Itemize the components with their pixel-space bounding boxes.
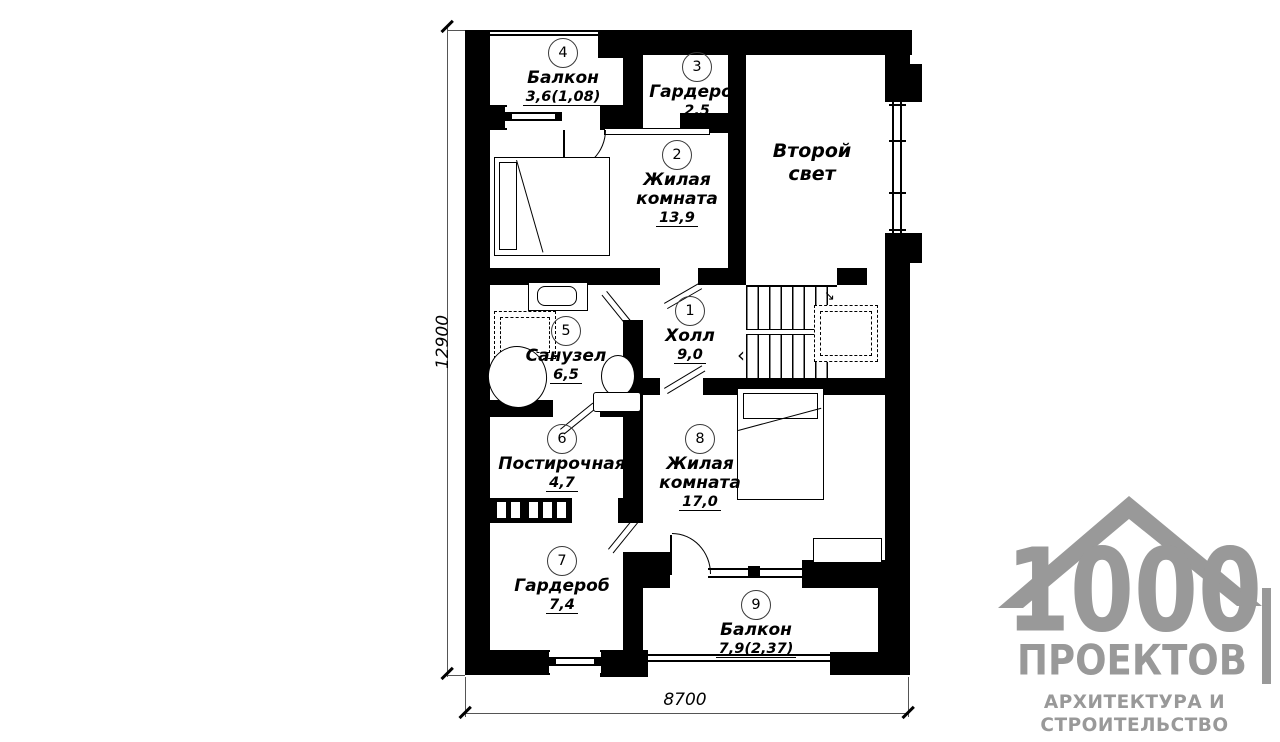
wall-pilaster: [910, 233, 922, 263]
window-secondlight: [887, 102, 908, 233]
room-number-badge: 7: [547, 546, 577, 576]
logo-number: 1000: [1006, 534, 1258, 649]
window-mullion: [889, 140, 906, 142]
window-mullion: [748, 566, 760, 578]
room-area: 17,0: [679, 494, 721, 511]
room-name: Гардероб: [649, 83, 744, 102]
stairs-landing-divider: [746, 329, 820, 335]
logo-wall-bar: [1262, 588, 1271, 684]
room-label-6-laundry: 6 Постирочная 4,7: [505, 424, 619, 492]
room-number-badge: 2: [662, 140, 692, 170]
dimension-extension: [447, 30, 465, 31]
room-area: 3,6(1,08): [523, 89, 604, 106]
wall-under-balcony4: [465, 105, 507, 130]
wall-right-mid: [885, 233, 910, 575]
window-glazing: [505, 119, 562, 121]
balcony4-railing: [467, 34, 623, 36]
room-number: 1: [685, 303, 694, 319]
vent-slot: [557, 502, 566, 518]
room-name: Постирочная: [498, 455, 625, 474]
room-number-badge: 8: [685, 424, 715, 454]
company-logo: 1000 ПРОЕКТОВ АРХИТЕКТУРА И СТРОИТЕЛЬСТВ…: [992, 488, 1280, 742]
room-number: 4: [558, 45, 567, 61]
window-mullion: [889, 192, 906, 194]
vent-slot: [511, 502, 520, 518]
room-name: Санузел: [526, 347, 607, 366]
room-number-badge: 4: [548, 38, 578, 68]
room-label-5-bathroom: 5 Санузел 6,5: [511, 316, 621, 384]
stairs-void-outline: [820, 311, 872, 356]
vent-slot: [497, 502, 506, 518]
window-glazing: [892, 102, 894, 233]
window-mullion: [889, 229, 906, 231]
balcony4-railing: [467, 30, 623, 32]
room-number: 9: [751, 597, 760, 613]
room-name: Балкон: [527, 69, 599, 88]
stairs-direction-arrow-icon: ↘: [824, 290, 835, 303]
window-jamb: [594, 657, 601, 665]
room-area: 2,5: [681, 103, 713, 120]
window-mullion: [889, 104, 906, 106]
window-jamb: [549, 657, 556, 665]
room-label-8-living: 8 Жилая комната 17,0: [647, 424, 753, 511]
window-glazing: [900, 102, 902, 233]
wall-bottom-mid: [600, 650, 648, 677]
wall-pilaster: [910, 64, 922, 102]
room-label-3-wardrobe: 3 Гардероб 2,5: [642, 52, 752, 120]
wall-stairs-pier: [837, 268, 867, 285]
room-number-badge: 6: [547, 424, 577, 454]
sliding-door-garderob3: [604, 128, 710, 135]
wall-balcony4-pier: [467, 34, 490, 62]
sink-basin: [537, 286, 577, 306]
dimension-extension: [447, 675, 465, 676]
room-name: Жилая комната: [647, 455, 753, 493]
room-number: 2: [672, 147, 681, 163]
room-area: 9,0: [674, 347, 706, 364]
room-name: Жилая комната: [624, 171, 730, 209]
wall-under-balcony4: [600, 105, 625, 130]
dimension-line-horizontal: [465, 713, 908, 714]
room-area: 6,5: [550, 367, 582, 384]
room-area: 7,9(2,37): [716, 641, 797, 658]
bed-headboard: [499, 162, 517, 250]
wall-balcony9-bottom: [830, 652, 910, 675]
room-name: Гардероб: [514, 577, 609, 596]
room-label-4-balcony: 4 Балкон 3,6(1,08): [508, 38, 618, 106]
vent-slot: [529, 502, 538, 518]
balcony9-railing: [648, 660, 830, 662]
toilet-tank: [593, 392, 641, 412]
wall-stub: [643, 378, 660, 395]
door-leaf-room8: [664, 365, 705, 394]
floor-plan-sheet: ↘ ‹ 1 Холл 9,0 2 Жилая комната 13,9 3 Га…: [0, 0, 1280, 742]
room-name: Балкон: [720, 621, 792, 640]
dimension-value-horizontal: 8700: [640, 690, 730, 710]
room-number-badge: 1: [675, 296, 705, 326]
wall-garderob3-left: [623, 30, 643, 135]
room-label-9-balcony: 9 Балкон 7,9(2,37): [700, 590, 812, 658]
wall-hall-top: [698, 268, 746, 285]
window-glazing: [505, 112, 562, 114]
room-number: 7: [557, 553, 566, 569]
cabinet-room8: [813, 538, 882, 563]
wall-right-upper: [885, 30, 910, 102]
room-label-7-wardrobe: 7 Гардероб 7,4: [505, 546, 619, 614]
bed-headboard: [743, 393, 818, 419]
logo-word: ПРОЕКТОВ: [1012, 640, 1252, 681]
vent-slot: [543, 502, 552, 518]
room-number: 5: [561, 323, 570, 339]
logo-tagline-1: АРХИТЕКТУРА И: [1017, 692, 1252, 714]
room-number: 3: [692, 59, 701, 75]
room-area: 4,7: [546, 475, 578, 492]
room-area: 13,9: [656, 210, 698, 227]
room-area: 7,4: [546, 597, 578, 614]
room-number-badge: 9: [741, 590, 771, 620]
wall-bottom-left: [465, 650, 550, 675]
door-arc-balcony9: [672, 533, 711, 574]
window-jamb: [505, 112, 512, 120]
window-balcony4: [505, 107, 562, 128]
room-number: 6: [557, 431, 566, 447]
wall-room8-balcony: [800, 560, 885, 588]
room-number-badge: 3: [682, 52, 712, 82]
room-name: Холл: [665, 327, 715, 346]
room-number-badge: 5: [551, 316, 581, 346]
room-label-1-hall: 1 Холл 9,0: [635, 296, 745, 364]
second-light-label: Второй свет: [765, 140, 859, 186]
wall-room8-balcony: [623, 552, 670, 588]
room-label-2-living: 2 Жилая комната 13,9: [624, 140, 730, 227]
room-number: 8: [695, 431, 704, 447]
logo-tagline-2: СТРОИТЕЛЬСТВО: [1017, 715, 1252, 737]
window-jamb: [555, 112, 562, 120]
dimension-value-vertical: 12900: [433, 297, 453, 387]
